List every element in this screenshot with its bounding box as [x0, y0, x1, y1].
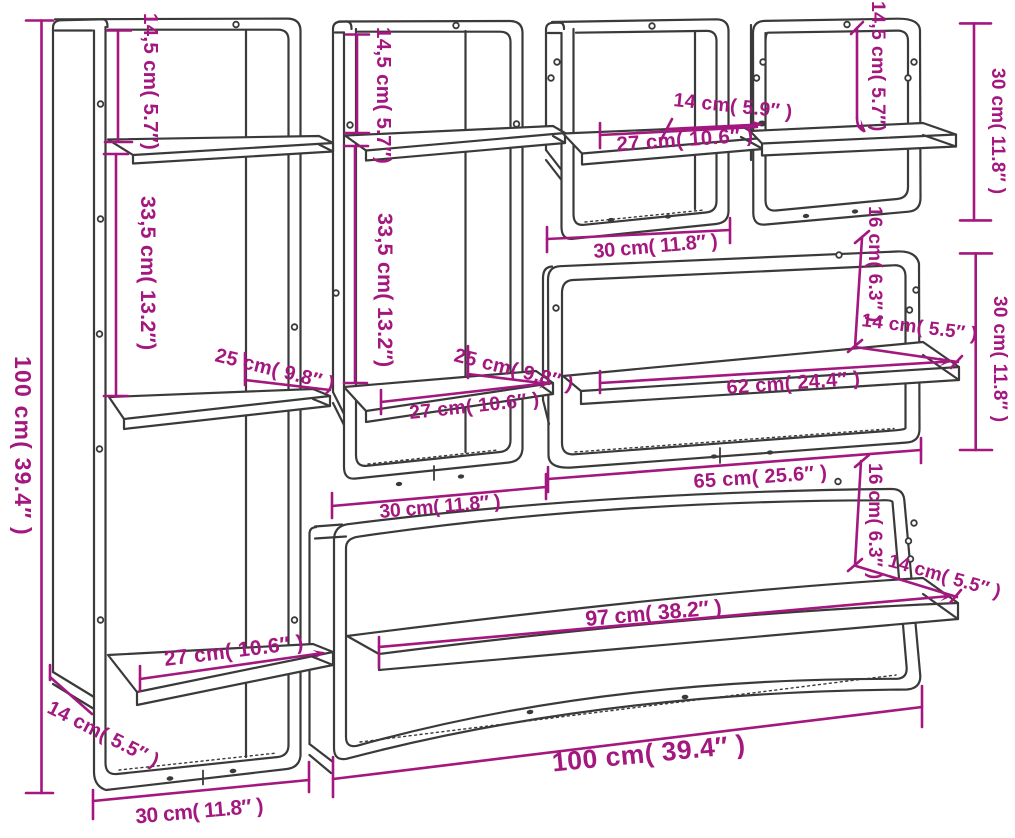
svg-text:16 cm( 6.3″ ): 16 cm( 6.3″ ) [864, 463, 885, 580]
svg-text:30 cm( 11.8″ ): 30 cm( 11.8″ ) [989, 296, 1010, 422]
svg-text:14,5 cm( 5.7″): 14,5 cm( 5.7″) [139, 13, 162, 150]
svg-text:33,5 cm( 13.2″): 33,5 cm( 13.2″) [373, 213, 397, 367]
svg-text:30 cm( 11.8″ ): 30 cm( 11.8″ ) [987, 68, 1008, 194]
svg-text:33,5 cm( 13.2″): 33,5 cm( 13.2″) [136, 196, 160, 350]
svg-text:100 cm( 39.4″ ): 100 cm( 39.4″ ) [10, 356, 36, 536]
svg-text:14,5 cm( 5.7″): 14,5 cm( 5.7″) [867, 1, 889, 132]
svg-text:14,5 cm( 5.7″): 14,5 cm( 5.7″) [372, 27, 395, 164]
svg-text:16 cm( 6.3″ ): 16 cm( 6.3″ ) [864, 206, 885, 323]
